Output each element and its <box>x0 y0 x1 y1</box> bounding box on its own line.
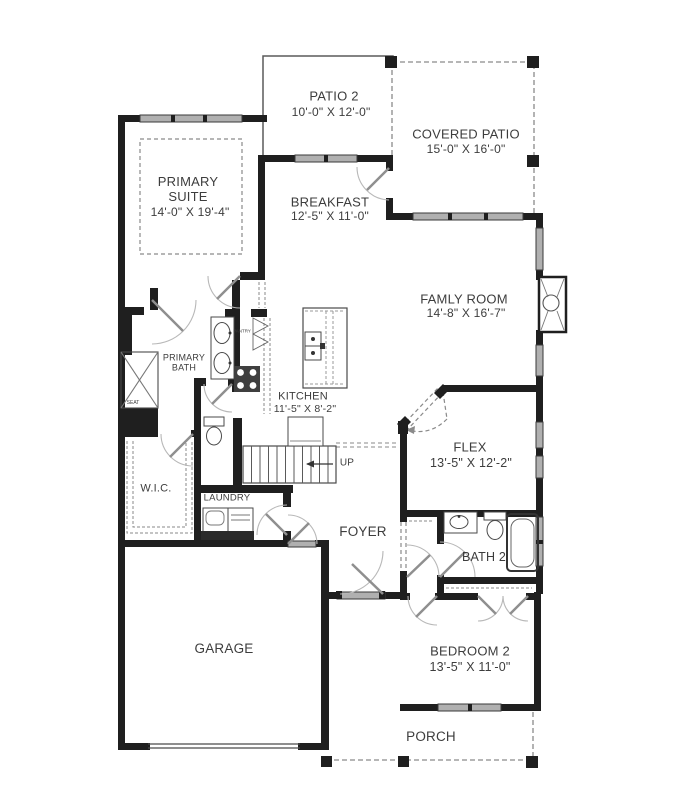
label-family-room-dims: 14'-8" X 16'-7" <box>427 307 506 321</box>
kitchen-island <box>303 308 347 388</box>
label-kitchen-name: KITCHEN <box>278 391 328 404</box>
label-bedroom2-dims: 13'-5" X 11'-0" <box>429 660 510 674</box>
label-patio2-dims: 10'-0" X 12'-0" <box>292 106 371 120</box>
label-wic-name: W.I.C. <box>140 483 171 496</box>
range <box>234 366 260 392</box>
label-porch-name: PORCH <box>406 729 456 745</box>
label-covered-patio-name: COVERED PATIO <box>412 128 520 143</box>
garage-door <box>148 744 300 748</box>
label-seat: SEAT <box>127 401 140 407</box>
refrigerator <box>288 417 323 446</box>
floor-plan: PATIO 2 10'-0" X 12'-0" COVERED PATIO 15… <box>0 0 685 801</box>
label-foyer-name: FOYER <box>339 524 387 540</box>
kitchen-counter-dashes <box>259 282 270 414</box>
label-primary-suite-dims: 14'-0" X 19'-4" <box>151 206 230 220</box>
label-laundry-name: LAUNDRY <box>204 494 251 505</box>
bath2-vanity <box>444 512 477 533</box>
floor-plan-drawing <box>0 0 685 801</box>
fireplace <box>539 277 566 332</box>
label-bath2-name: BATH 2 <box>462 550 506 564</box>
label-primary-bath-name: PRIMARY BATH <box>155 353 213 374</box>
label-breakfast-dims: 12'-5" X 11'-0" <box>291 210 369 224</box>
label-kitchen-dims: 11'-5" X 8'-2" <box>274 403 337 415</box>
label-primary-suite-name: PRIMARY SUITE <box>143 175 233 205</box>
label-patio2-name: PATIO 2 <box>309 90 358 105</box>
label-garage-name: GARAGE <box>195 641 254 657</box>
bathtub <box>507 514 538 571</box>
stair-overhead-dashes <box>336 443 398 447</box>
washer-dryer <box>201 508 254 540</box>
bath2-toilet <box>484 512 506 540</box>
label-pantry: PANTRY <box>233 328 251 333</box>
foyer-cased-opening <box>401 522 406 571</box>
label-up: UP <box>340 457 354 469</box>
primary-vanity <box>211 317 234 379</box>
primary-toilet <box>204 417 224 445</box>
label-bedroom2-name: BEDROOM 2 <box>430 645 510 660</box>
label-flex-name: FLEX <box>453 441 486 456</box>
pantry-shelves <box>253 318 268 350</box>
label-covered-patio-dims: 15'-0" X 16'-0" <box>427 143 506 157</box>
label-flex-dims: 13'-5" X 12'-2" <box>430 456 512 470</box>
stairs <box>243 446 336 483</box>
